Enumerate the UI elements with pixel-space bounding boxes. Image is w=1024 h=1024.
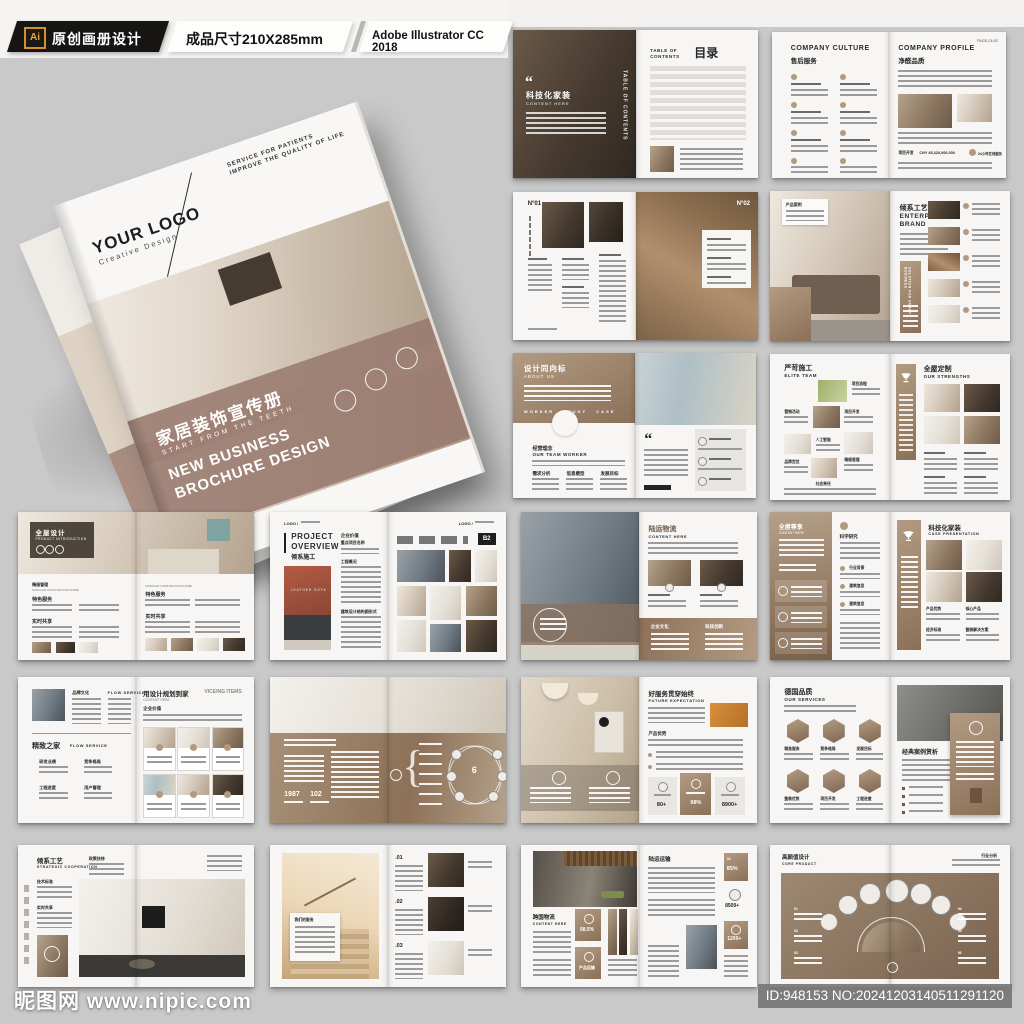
s11-i3: 工程进度 — [39, 785, 56, 791]
s7-a: 特色服务 — [32, 596, 52, 603]
s18-n1: 01 — [794, 907, 798, 911]
s7-thumb — [197, 638, 218, 651]
s17-r1-box: 0185% — [724, 853, 748, 881]
s10-box-3 — [775, 632, 827, 654]
text-lines — [524, 385, 611, 401]
s6-grid-photo — [924, 384, 960, 412]
text-lines — [856, 753, 882, 763]
s6-grid-photo — [924, 416, 960, 444]
s5-col3: 发展目标 — [600, 471, 618, 477]
text-lines — [840, 542, 881, 560]
s18-n6: 06 — [958, 951, 962, 955]
page-fold — [382, 845, 394, 987]
s4-vertical-band: SOLUTION FOR SMART BUSINESS — [900, 261, 922, 333]
s8-floor — [284, 640, 331, 650]
s10-c4: 整装解决方案 — [966, 628, 989, 633]
s3-photo-2 — [589, 202, 623, 242]
s17-stat-box-2: 产品运输 — [575, 947, 601, 979]
s8-c2: 工程概况 — [341, 559, 357, 565]
item-label — [791, 111, 821, 114]
s8-logo: LOGO / — [284, 521, 298, 526]
text-lines — [840, 573, 881, 579]
s1-toc-en: TABLE OF CONTENTS — [650, 48, 684, 60]
text-lines — [958, 935, 986, 943]
spread-13-stats: 好服务贯穿始终 FUTURE EXPECTATION 产品优势 80+ 98% … — [521, 677, 757, 823]
s18-ring-photo — [862, 922, 920, 952]
spread-17-transport: 跨国物流 CONTENT HERE 98.5% 产品运输 陆运运输 0185% … — [521, 845, 757, 987]
text-lines — [924, 458, 958, 470]
cover-photo-hood — [218, 252, 282, 306]
s7-bed — [148, 549, 219, 574]
s12-center-number: 6 — [472, 765, 477, 775]
text-lines — [909, 794, 943, 799]
text-lines — [648, 542, 738, 554]
s11-right-sub: CONTENT HERE — [143, 698, 170, 702]
s2-left-subtitle: 售后服务 — [791, 55, 817, 65]
item-label — [709, 478, 732, 481]
text-lines — [926, 613, 960, 622]
text-lines — [972, 203, 1001, 217]
s6-g5: 精细管理 — [844, 458, 859, 463]
text-lines — [528, 264, 553, 294]
text-lines — [898, 132, 992, 146]
item-label — [707, 276, 732, 279]
pendant-lamp — [578, 693, 598, 705]
text-lines — [901, 556, 918, 610]
s17-cn: 跨国物流 — [533, 913, 555, 921]
dot-icon — [963, 229, 969, 235]
text-lines — [964, 482, 998, 494]
text-lines — [395, 865, 423, 891]
text-lines — [791, 638, 822, 649]
item-label — [964, 476, 986, 479]
bullet-square — [902, 803, 905, 806]
s18-n4: 04 — [958, 907, 962, 911]
s9-band-label-1: 企业文化 — [651, 624, 669, 630]
s7-thumb — [145, 638, 166, 651]
text-lines — [301, 521, 320, 526]
s6-photo — [813, 406, 839, 428]
s4-card: 产品案例 — [782, 199, 828, 225]
text-lines — [37, 886, 72, 900]
s17-stat-box: 98.5% — [575, 909, 601, 941]
spread-15-cooperation: 倾系工艺 STRATEGIC COOPERATION 政策扶持 技术标准 实时共… — [18, 845, 254, 987]
text-lines — [39, 792, 67, 802]
text-lines — [648, 867, 714, 893]
s8-title-cn: 倾系施工 — [291, 552, 315, 561]
dot-icon — [963, 203, 969, 209]
text-lines — [143, 714, 242, 722]
text-lines — [84, 766, 112, 776]
s3-no1: N°01 — [528, 201, 541, 207]
trophy-icon — [900, 372, 912, 384]
watermark-site: 昵图网 www.nipic.com — [14, 985, 252, 1015]
s11-i1: 研发业绩 — [39, 759, 56, 765]
s7-art — [207, 519, 231, 540]
s4-item-photo — [928, 227, 959, 245]
text-lines — [794, 913, 822, 921]
s6-g3: 项目开发 — [844, 410, 859, 415]
text-lines — [966, 634, 1000, 643]
text-lines — [902, 759, 950, 781]
text-lines — [89, 863, 124, 875]
s10-panel-en: CONTENT HERE — [779, 531, 804, 535]
footer-lines — [528, 328, 557, 332]
s1-left-photo: “ 科技化家装 CONTENT HERE TABLE OF CONTENTS — [513, 30, 636, 178]
s4-item-photo — [928, 305, 959, 323]
s4-brown-corner — [770, 287, 811, 341]
s17-strip — [630, 909, 638, 955]
text-lines — [331, 751, 378, 799]
brochure-mockup: YOUR LOGO Creative Design SERVICE FOR PA… — [0, 55, 508, 515]
s14-h4: 整装优势 — [784, 797, 799, 802]
quote-icon: “ — [644, 431, 652, 449]
s15-b: 技术标准 — [37, 879, 53, 885]
s11-i4: 用户管理 — [84, 785, 101, 791]
s17-pct: 98.5% — [580, 927, 594, 933]
circle-icon — [55, 545, 64, 554]
text-lines — [698, 468, 742, 473]
dot-icon — [840, 602, 845, 607]
s6-photo — [818, 380, 847, 402]
s7-thumb — [171, 638, 192, 651]
s13-title: 好服务贯穿始终 — [648, 688, 694, 698]
s10-photo — [966, 540, 1002, 570]
caption-lines — [284, 801, 303, 806]
s7-thumb — [79, 642, 98, 653]
text-lines — [903, 305, 918, 327]
arc-circle — [885, 879, 909, 903]
bullet-square — [902, 795, 905, 798]
text-lines — [786, 210, 824, 221]
s10-box-1 — [775, 580, 827, 602]
s15-mirror-photo — [37, 935, 68, 977]
s14-h2: 竞争格局 — [820, 747, 835, 752]
text-lines — [707, 244, 746, 253]
header-app-label: Adobe Illustrator CC 2018 — [372, 30, 508, 54]
dot-icon — [791, 130, 797, 136]
text-lines — [32, 604, 72, 614]
s6-g4: 人工智能 — [816, 438, 831, 443]
s17-en: CONTENT HERE — [533, 922, 567, 926]
s8-badge: B2 — [478, 533, 496, 545]
bullet-dot — [648, 753, 652, 757]
text-lines — [909, 810, 943, 815]
hexagon-icon — [787, 769, 809, 793]
item-label — [964, 452, 986, 455]
chip-icon — [984, 791, 994, 803]
s13-v1: 80+ — [657, 802, 666, 808]
cover-tagline-2: IMPROVE THE QUALITY OF LIFE — [229, 131, 345, 176]
text-lines — [926, 634, 960, 643]
text-lines — [145, 621, 190, 633]
s9-left-photo — [521, 512, 639, 660]
text-lines — [533, 959, 571, 979]
s5-sec-cn: 经营理念 — [532, 445, 552, 452]
s15-timeline — [24, 885, 29, 969]
s13-v2: 98% — [690, 800, 701, 806]
location-icon — [331, 387, 359, 415]
lamp-icon — [887, 962, 898, 973]
spread-03-numbers: N°01 N°02 — [513, 192, 758, 340]
s10-box-2 — [775, 606, 827, 628]
s13-en: FUTURE EXPECTATION — [648, 698, 704, 703]
s11-card — [212, 774, 245, 818]
caption-lines — [310, 801, 329, 806]
s14-h5: 项目开发 — [820, 797, 835, 802]
text-lines — [532, 478, 559, 493]
arc-circle — [838, 895, 858, 915]
s17-strip — [608, 909, 616, 955]
s13-stat-card-3: 8900+ — [715, 777, 746, 815]
s6-grid-photo — [964, 416, 1000, 444]
spread-06-team: 严苛施工 ELITE TEAM 项目流程 营销活动 项目开发 人工智能 精细管理… — [770, 354, 1010, 500]
s8-c3: 建筑设计结构图形式 — [341, 609, 377, 615]
card-icon — [224, 791, 231, 798]
s4-item-photo — [928, 253, 959, 271]
idea-icon — [698, 437, 707, 446]
text-lines — [784, 705, 856, 713]
s10-rh: 科学研究 — [840, 534, 858, 540]
s9-title-cn: 陆运物流 — [648, 524, 676, 534]
caption-lines — [686, 792, 704, 797]
s5-photo — [635, 353, 757, 425]
header-tag-label: 原创画册设计 — [52, 29, 142, 49]
text-lines — [147, 803, 172, 813]
stair-rail — [304, 877, 356, 906]
arc-circle — [910, 883, 932, 905]
s17-r3-box: 1200+ — [724, 921, 748, 949]
s11-card — [177, 774, 210, 818]
page-fold — [883, 32, 895, 178]
text-lines — [656, 763, 743, 771]
spread-10-premium: 全屋尊享 CONTENT HERE 科学研究 行业背景 建筑信息 建筑信息 科技… — [770, 512, 1010, 660]
s15-c: 实时共享 — [37, 905, 53, 911]
s15-floor — [79, 955, 244, 977]
watermark-url: www.nipic.com — [87, 990, 252, 1013]
s9-title-en: CONTENT HERE — [648, 534, 687, 539]
s13-stat-card-1: 80+ — [648, 777, 676, 815]
s5-col2: 信息模型 — [566, 471, 584, 477]
s13-left-photo — [521, 677, 639, 823]
spread-11-flow: 品牌文化 FLOW SERVICE 精致之家 FLOW SERVICE 研发业绩… — [18, 677, 254, 823]
s12-count: 102 — [310, 791, 322, 798]
s4-item-photo — [928, 279, 959, 297]
building-icon — [726, 782, 736, 792]
s5-circle-badge — [552, 410, 578, 436]
text-lines — [820, 753, 849, 763]
s16-overlay-box: 我们的服务 — [290, 913, 340, 961]
spread-16-steps: 我们的服务 .01 .02 .03 — [270, 845, 506, 987]
s14-cn: 德国品质 — [784, 687, 812, 697]
text-lines — [791, 89, 828, 99]
dot-icon — [791, 102, 797, 108]
top-brochure-cover: YOUR LOGO Creative Design SERVICE FOR PA… — [53, 101, 485, 576]
s17-photo — [686, 925, 717, 969]
text-lines — [395, 909, 423, 935]
text-lines — [648, 739, 742, 747]
arc-circle — [931, 895, 951, 915]
caption-lines — [654, 794, 671, 799]
text-lines — [844, 464, 873, 472]
s7-banner-cn: 全屋设计 — [36, 527, 66, 537]
s8-collage — [430, 624, 461, 652]
item-label — [791, 83, 821, 86]
text-lines — [599, 260, 626, 322]
text-lines — [909, 786, 943, 791]
s6-left-cn: 严苛施工 — [784, 363, 812, 373]
text-lines — [820, 803, 849, 813]
s4-item-photo — [928, 201, 959, 219]
item-label — [707, 257, 732, 260]
s10-brown-panel: 全屋尊享 CONTENT HERE — [770, 512, 832, 660]
text-lines — [791, 145, 828, 155]
s1-small-photo — [650, 146, 674, 172]
dot-icon — [963, 281, 969, 287]
s6-photo — [811, 458, 837, 478]
text-lines — [924, 482, 958, 494]
text-lines — [341, 566, 381, 604]
list-lines — [419, 743, 443, 805]
dot-icon — [963, 307, 969, 313]
s17-strip — [619, 909, 627, 955]
person-icon — [691, 779, 701, 789]
item-label — [707, 238, 732, 241]
text-lines — [341, 548, 379, 554]
s6-trophy-band — [896, 364, 916, 460]
caption-lines — [468, 949, 492, 959]
text-lines — [108, 698, 132, 724]
s17-office-photo — [533, 851, 637, 907]
s2-right-title: COMPANY PROFILE — [898, 45, 974, 52]
text-lines — [958, 913, 986, 921]
s2-photo-2 — [957, 94, 992, 122]
s8-photo: LEATHER SOFA — [284, 566, 331, 650]
s8-c1: 企业价值 — [341, 533, 359, 539]
s7-thumb — [32, 642, 51, 653]
s10-c2: 核心产品 — [966, 607, 981, 612]
text-lines — [395, 953, 423, 979]
card-icon — [224, 744, 231, 751]
target-icon — [969, 721, 983, 735]
text-lines — [181, 803, 206, 813]
s11-photo — [32, 689, 65, 721]
s2-stat-value: CNY 45,320,000,000 — [919, 151, 954, 155]
dot-icon — [791, 158, 797, 164]
dot-icon — [840, 566, 845, 571]
s11-right-cn: 用设计规划到家 — [143, 688, 189, 698]
text-lines — [852, 388, 881, 398]
s1-photo-title: 科技化家装 — [526, 90, 571, 101]
page-fold — [884, 512, 896, 660]
text-lines — [181, 756, 206, 766]
text-lines — [958, 957, 986, 965]
green-chairs — [601, 891, 624, 898]
s8-tab-strip — [397, 536, 468, 544]
text-lines — [784, 466, 808, 474]
text-lines — [791, 166, 828, 174]
text-lines — [195, 621, 240, 633]
s14-brown-card — [950, 713, 1000, 815]
dot-icon — [791, 74, 797, 80]
text-lines — [840, 145, 877, 155]
text-lines — [216, 803, 241, 813]
s1-toc-cn: 目录 — [694, 44, 718, 61]
truck-icon — [584, 952, 594, 962]
s5-title-cn: 设计同向标 — [524, 363, 567, 374]
caption-grid — [648, 945, 679, 979]
text-lines — [899, 394, 913, 452]
s8-title-en2: OVERVIEW — [291, 542, 339, 551]
orbit-node — [454, 791, 465, 802]
chip-icon — [957, 791, 967, 803]
bullet-square — [902, 787, 905, 790]
text-lines — [295, 926, 335, 954]
s6-right-en: OUR STRENGTHS — [924, 374, 971, 379]
s11-i2: 竞争格局 — [84, 759, 101, 765]
text-lines — [791, 117, 828, 127]
s16-box-label: 我们的服务 — [295, 918, 314, 923]
item-label — [840, 83, 870, 86]
caption-lines — [608, 959, 636, 977]
s1-toc-rows — [650, 66, 746, 140]
showcase-image: Ai 原创画册设计 成品尺寸210X285mm Adobe Illustrato… — [0, 0, 1024, 1024]
spread-07-banner: 全屋设计 PRODUCT INTRODUCTION 精细管理 MODULAR C… — [18, 512, 254, 660]
bullet-dot — [648, 765, 652, 769]
hexagon-icon — [859, 719, 881, 743]
s6-g1: 项目流程 — [852, 382, 867, 387]
s3-overlay-box — [702, 230, 751, 288]
text-lines — [840, 89, 877, 99]
s17-r1: 01 — [727, 857, 731, 861]
card-icon — [190, 744, 197, 751]
compass-icon — [362, 365, 390, 393]
clock-icon — [969, 149, 976, 156]
caption-lines — [468, 861, 492, 871]
footer-lines — [784, 488, 875, 496]
arc-circle — [820, 913, 838, 931]
s11-card — [177, 727, 210, 771]
s13-art-shape — [599, 717, 609, 727]
round-mirror — [44, 946, 60, 962]
text-lines — [600, 478, 627, 493]
s9-band-label-2: 科技创新 — [705, 624, 723, 630]
text-lines — [840, 591, 881, 597]
s6-photo — [784, 434, 810, 454]
text-lines — [644, 449, 688, 479]
text-lines — [532, 460, 624, 466]
text-lines — [680, 148, 744, 170]
s10-trophy-band — [897, 520, 921, 650]
text-lines — [972, 229, 1001, 243]
chip-icon — [970, 788, 982, 803]
s8-collage — [466, 620, 497, 652]
s8-title-en1: PROJECT — [291, 532, 333, 541]
s14-en: OUR SERVICES — [784, 697, 825, 702]
s7-thumb — [56, 642, 75, 653]
item-label — [924, 476, 946, 479]
s16-photo-1 — [428, 853, 463, 887]
text-lines — [475, 521, 494, 526]
text-lines — [972, 307, 1001, 321]
text-lines — [39, 766, 67, 776]
s17-b2: 产品运输 — [579, 965, 595, 971]
s7-b: 实时共享 — [32, 618, 52, 625]
text-lines — [566, 478, 593, 493]
text-lines — [562, 264, 589, 280]
dot-icon — [963, 255, 969, 261]
orbit-node — [446, 771, 457, 782]
